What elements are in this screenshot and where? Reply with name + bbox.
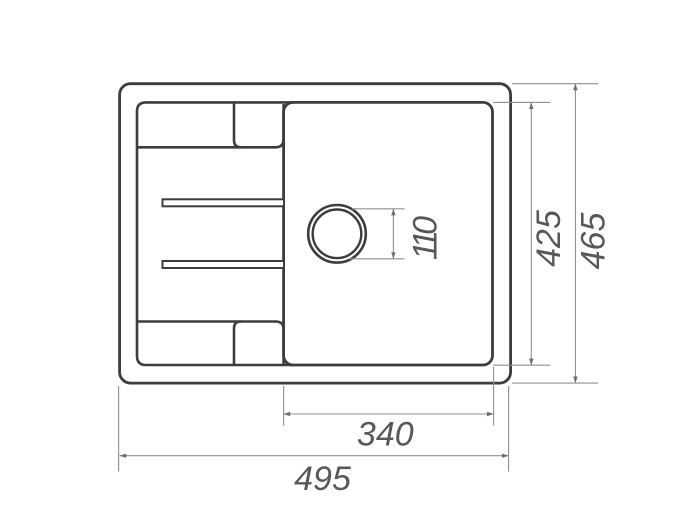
svg-text:465: 465 <box>575 213 613 270</box>
svg-text:340: 340 <box>357 416 414 454</box>
svg-text:425: 425 <box>530 210 568 267</box>
svg-text:110: 110 <box>407 216 445 260</box>
svg-text:495: 495 <box>294 460 351 498</box>
